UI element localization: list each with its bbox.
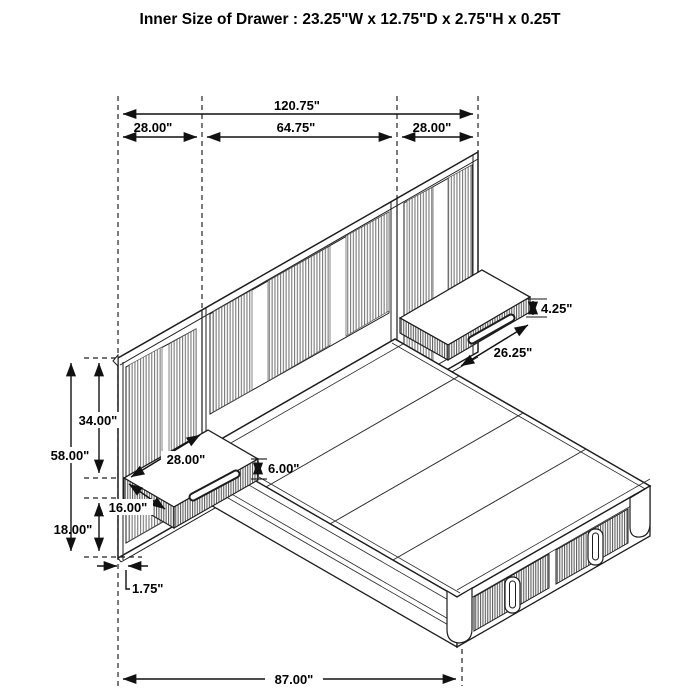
- drawing-title: Inner Size of Drawer : 23.25"W x 12.75"D…: [140, 11, 561, 28]
- dim-label-right-panel-width: 28.00": [413, 120, 452, 135]
- dim-label-left-nightstand-height: 6.00": [268, 461, 299, 476]
- footboard-drawer-left-handle: [505, 577, 520, 613]
- dim-label-right-nightstand-height: 4.25": [541, 301, 572, 316]
- dim-label-panel-height: 58.00": [51, 448, 90, 463]
- dim-leader-1-75: [126, 570, 130, 589]
- technical-drawing-page: Inner Size of Drawer : 23.25"W x 12.75"D…: [0, 0, 700, 700]
- dim-label-left-nightstand-width: 28.00": [167, 452, 206, 467]
- dim-label-center-panel-width: 64.75": [277, 120, 316, 135]
- dim-label-overall-width: 120.75": [274, 98, 320, 113]
- dim-label-panel-top-to-nightstand: 34.00": [79, 413, 118, 428]
- panel-cap-left-end: [113, 355, 118, 366]
- dim-label-panel-thickness: 1.75": [132, 581, 163, 596]
- dim-label-left-panel-width: 28.00": [134, 120, 173, 135]
- footboard-drawer-right-handle: [588, 529, 603, 565]
- dim-label-overall-depth: 87.00": [275, 672, 314, 687]
- dim-label-left-nightstand-depth: 16.00": [109, 500, 148, 515]
- bed-corner-post-left: [447, 588, 472, 643]
- dim-label-right-nightstand-width: 26.25": [494, 345, 533, 360]
- dim-label-floor-clearance: 18.00": [54, 522, 93, 537]
- bed-dimension-drawing: Inner Size of Drawer : 23.25"W x 12.75"D…: [0, 0, 700, 700]
